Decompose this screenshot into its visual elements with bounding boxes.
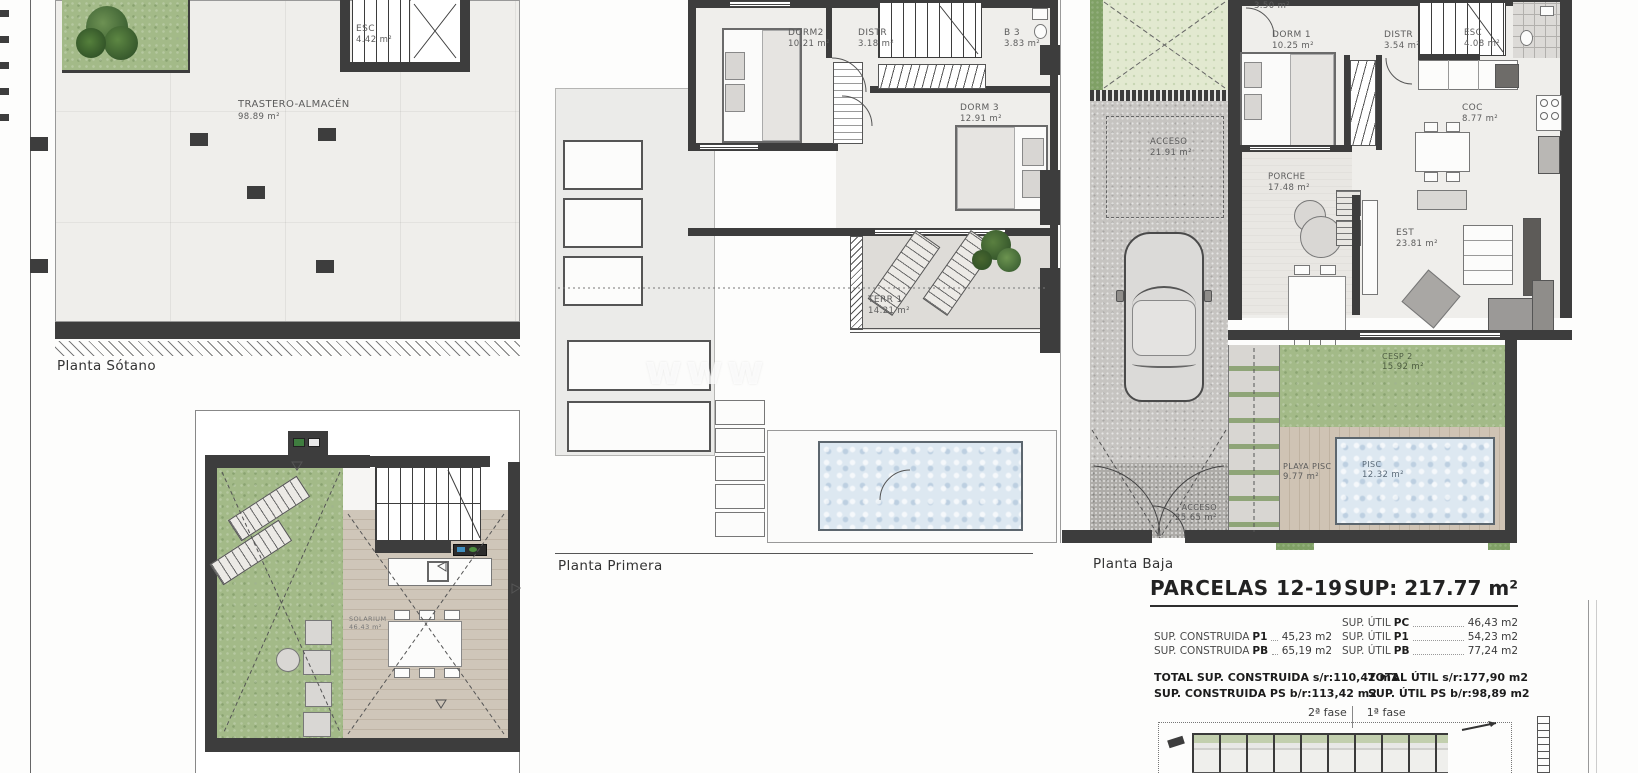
chair [1424,172,1438,182]
window [730,1,790,7]
phase-1-label: 1ª fase [1367,706,1406,719]
baja-right-dwelling-wall [1560,0,1572,318]
solar-panel-icon [293,438,305,447]
baja-left-wall-seg [1040,170,1060,225]
storage-cell [715,400,765,425]
bathroom-sink [1540,6,1554,16]
plant-icon [972,250,992,270]
sheet-left-frame-line [30,0,31,773]
phase-labels: 2ª fase 1ª fase [1308,706,1406,719]
summary-row: SUP. ÚTILPB77,24 m2 [1342,643,1518,657]
stove-burner [1540,99,1548,107]
plant-icon [997,248,1021,272]
car-mirror [1204,290,1212,302]
column [318,128,336,141]
room-area: 12.91 m² [960,114,1002,125]
parcel-title: PARCELAS 12-19 [1150,576,1343,600]
room-label-cesp2: CESP 2 15.92 m² [1382,352,1424,373]
room-name: PORCHE [1268,172,1310,183]
paver-steps-strip [1228,345,1280,535]
room-area: 15.92 m² [1382,362,1424,373]
room-label-distr-p1: DISTR 3.18 m² [858,28,894,50]
total-surface: SUP: 217.77 m² [1344,576,1518,600]
room-name: TERR 1 [868,295,910,306]
totals-col-left: TOTAL SUP. CONSTRUIDA s/r:110,42 m2 SUP.… [1154,671,1350,703]
solarium-stairs [375,467,481,541]
room-area: 3.54 m² [1384,41,1420,52]
sheet-edge-tick [0,36,9,43]
chair [1294,265,1310,275]
room-name: SOLARIUM [349,615,386,623]
kitchen-oven [1495,64,1519,88]
baja-gate-driveway [1090,463,1228,538]
stove-burner [1540,112,1548,120]
garden-paver-row [1090,90,1228,101]
primera-pool [818,441,1023,531]
room-area: 98.89 m² [238,112,350,123]
solar-control-led [457,547,465,552]
storage-cell [715,484,765,509]
plan-title-sotano: Planta Sótano [57,358,156,374]
room-label-esc-sotano: ESC 4.42 m² [356,24,392,46]
lounge-chair [305,682,332,707]
room-area: 12.32 m² [1362,470,1404,481]
room-area: 3.18 m² [858,39,894,50]
chair [394,668,410,678]
room-label-b3: B 3 3.83 m² [1004,28,1040,50]
baja-pool [1335,437,1495,525]
sideboard [1463,225,1513,285]
sheet-right-frame-line2 [1596,600,1597,773]
wardrobe [878,64,986,89]
room-area: 9.77 m² [1283,472,1331,483]
solarium-parapet-left [205,455,217,752]
room-name: PISC [1362,460,1404,470]
pillow [1022,138,1044,166]
lounge-chair [303,712,331,737]
room-name: DISTR [858,28,894,39]
summary-row: SUP. CONSTRUIDAP145,23 m2 [1154,629,1332,643]
room-name: DORM 1 [1272,30,1314,41]
column [247,186,265,199]
room-area: 4.08 m² [1464,39,1500,50]
plant-icon [104,26,138,60]
room-label-esc-baja: ESC 4.08 m² [1464,28,1500,49]
room-area: 4.42 m² [356,35,392,46]
summary-header: PARCELAS 12-19 SUP: 217.77 m² [1150,576,1518,600]
room-name: CESP 2 [1382,352,1424,362]
tv-unit [1362,200,1378,295]
sheet-right-frame-line [1588,600,1589,773]
site-plan-house-row [1192,733,1448,773]
room-area: 10.21 m² [788,39,830,50]
plan-title-baja: Planta Baja [1093,556,1174,572]
room-name: ACCESO [1150,137,1192,148]
chair [1320,265,1336,275]
summary-row: SUP. CONSTRUIDAPB65,19 m2 [1154,643,1332,657]
sotano-stairs-landing [411,0,460,62]
terrace-bottom-rail [850,328,1058,333]
room-label-pisc: PISC 12.32 m² [1362,460,1404,481]
room-name: B 3 [1004,28,1040,39]
storage-cell [715,512,765,537]
summary-row: SUP. ÚTILP154,23 m2 [1342,629,1518,643]
fridge [1538,136,1560,174]
car-mirror [1116,290,1124,302]
chair [444,668,460,678]
room-area: 17.48 m² [1268,183,1310,194]
room-name: ESC [1464,28,1500,39]
room-name: EST [1396,228,1438,239]
baja-left-line [1060,0,1061,543]
kitchen-counter-seg [1448,60,1449,90]
room-label-dorm1: DORM 1 10.25 m² [1272,30,1314,52]
solarium-parapet-bottom [205,738,520,752]
plant-icon [76,28,106,58]
room-area: 3.50 m² [1254,1,1290,12]
room-label-porche: PORCHE 17.48 m² [1268,172,1310,193]
stove-burner [1551,99,1559,107]
baja-bottom-wall [1185,530,1517,543]
wardrobe [1350,60,1376,146]
room-area: 23.81 m² [1396,239,1438,250]
totals-col-right: TOTAL ÚTIL s/r:177,90 m2 SUP. ÚTIL PS b/… [1368,671,1518,703]
terrace-left-hatch-wall [850,236,863,330]
room-area: 8.77 m² [1462,114,1498,125]
bathroom-sink [1032,8,1048,20]
side-table-round [276,648,300,672]
room-area: 3.83 m² [1004,39,1040,50]
sheet-edge-tick [0,88,9,95]
window [700,144,758,150]
chair [419,668,435,678]
room-label-solarium: SOLARIUM 46.43 m² [349,615,386,631]
chair [1424,122,1438,132]
chair [419,610,435,620]
total-row: TOTAL SUP. CONSTRUIDA s/r:110,42 m2 [1154,671,1350,687]
baja-left-dwelling-wall [1228,0,1242,320]
dining-table [388,621,462,667]
total-row: TOTAL ÚTIL s/r:177,90 m2 [1368,671,1518,687]
room-label-trastero: TRASTERO-ALMACÉN 98.89 m² [238,99,350,122]
room-area: 25.65 m² [1175,513,1217,524]
solarium-stair-wall [370,456,490,467]
blanket [1290,54,1334,146]
room-area: 14.21 m² [868,306,910,317]
baja-garden-strip [1090,0,1103,90]
storage-unit [563,140,643,190]
solarium-stair-wall-bottom [375,541,451,553]
pillow [1244,62,1262,88]
baja-right-garden-wall [1505,340,1517,543]
est-partition-wall [1352,195,1360,315]
floor-plan-sheet: ESC 4.42 m² TRASTERO-ALMACÉN 98.89 m² Pl… [0,0,1638,773]
column [316,260,334,273]
wall [1376,55,1382,150]
baja-left-wall-seg [1040,268,1060,353]
storage-unit [563,198,643,248]
room-name: ACCESO [1175,503,1217,513]
chair [1446,172,1460,182]
room-label-dorm3: DORM 3 12.91 m² [960,103,1002,125]
solar-control-led [469,547,477,552]
summary-col-construida: SUP. CONSTRUIDAP145,23 m2 SUP. CONSTRUID… [1154,629,1332,657]
baja-bottom-wall [1062,530,1152,543]
sheet-edge-tick [0,10,9,17]
chair [444,610,460,620]
column [190,133,208,146]
sotano-stair-wall [340,62,470,72]
blanket [957,127,1015,209]
chair [1446,122,1460,132]
watermark-text: www [645,348,768,394]
lounge-chair [303,650,331,675]
sheet-edge-tick [0,62,9,69]
summary-columns: SUP. ÚTILPC46,43 m2 SUP. ÚTILP154,23 m2 … [1150,607,1518,669]
baja-left-wall-seg [1040,45,1060,75]
grass-tuft [1488,543,1510,550]
solarium-parapet-top [205,455,370,468]
room-name: PLAYA PISC [1283,462,1331,472]
window-slider [1360,332,1500,338]
summary-totals: TOTAL SUP. CONSTRUIDA s/r:110,42 m2 SUP.… [1150,671,1518,707]
site-plan-ladder [1537,716,1550,773]
room-label-b2: 3.50 m² [1254,1,1290,12]
plan-title-primera: Planta Primera [558,558,663,574]
solar-panel-icon [308,438,320,447]
console-table [1417,190,1467,210]
kitchen-counter-seg [1478,60,1479,90]
room-area: 10.25 m² [1272,41,1314,52]
room-label-distr-pb: DISTR 3.54 m² [1384,30,1420,52]
room-label-acceso: ACCESO 21.91 m² [1150,137,1192,158]
window-slider [1250,146,1330,151]
pillow [1244,94,1262,120]
summary-col-util: SUP. ÚTILPC46,43 m2 SUP. ÚTILP154,23 m2 … [1342,615,1518,657]
total-row: SUP. CONSTRUIDA PS b/r:113,42 m2 [1154,687,1350,703]
room-label-dorm2: DORM2 10.21 m² [788,28,830,50]
solarium-parapet-right [508,462,520,752]
car-roof [1132,300,1196,356]
grass-tuft [1276,543,1314,550]
room-area: 21.91 m² [1150,148,1192,159]
dining-table [1288,276,1346,334]
room-label-est: EST 23.81 m² [1396,228,1438,250]
driveway-dashed-zone [1106,116,1224,218]
storage-unit-wide [567,401,711,452]
column [30,259,48,273]
primera-base-line [555,553,1033,554]
lounge-chair [305,620,332,645]
room-name: DORM 3 [960,103,1002,114]
column [30,137,48,151]
toilet [1520,30,1533,46]
room-name: DORM2 [788,28,830,39]
room-name: DISTR [1384,30,1420,41]
car-rear-window [1132,352,1196,368]
baja-front-garden [1090,0,1228,90]
outdoor-sink [427,561,449,582]
room-label-playa-pisc: PLAYA PISC 9.77 m² [1283,462,1331,483]
room-label-coc: COC 8.77 m² [1462,103,1498,125]
storage-cell [715,428,765,453]
stair-shaft [833,62,863,144]
sheet-edge-tick [0,114,9,121]
room-label-acceso2: ACCESO 25.65 m² [1175,503,1217,524]
sofa-chaise [1532,280,1554,332]
summary-row: SUP. ÚTILPC46,43 m2 [1342,615,1518,629]
solarium-stairs-mid-line [375,503,481,504]
sotano-bottom-wall [55,322,520,339]
pillow [725,52,745,80]
room-area: 46.43 m² [349,623,386,631]
chair [394,610,410,620]
kitchen-table [1415,132,1470,172]
storage-unit [563,256,643,306]
room-name: COC [1462,103,1498,114]
total-row: SUP. ÚTIL PS b/r:98,89 m2 [1368,687,1518,703]
stove-burner [1551,112,1559,120]
pillow [725,84,745,112]
storage-cell [715,456,765,481]
room-name: ESC [356,24,392,35]
phase-2-label: 2ª fase [1308,706,1347,719]
primera-left-wall [688,0,696,151]
sotano-ground-hatch [55,341,520,356]
area-summary-table: PARCELAS 12-19 SUP: 217.77 m² SUP. ÚTILP… [1150,576,1518,707]
solarium-deck-upper [343,468,375,510]
room-name: TRASTERO-ALMACÉN [238,99,350,112]
room-label-terr1: TERR 1 14.21 m² [868,295,910,317]
